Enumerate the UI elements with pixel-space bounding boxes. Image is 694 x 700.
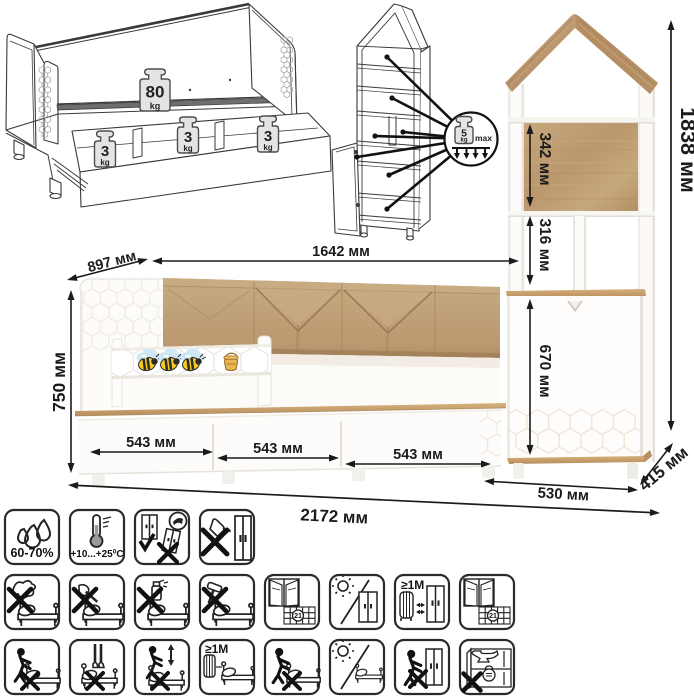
svg-text:2172 мм: 2172 мм <box>300 505 369 527</box>
svg-text:kg: kg <box>100 158 109 167</box>
svg-text:+10...+250С: +10...+250С <box>70 549 123 561</box>
svg-text:750 мм: 750 мм <box>49 352 69 412</box>
svg-text:kg: kg <box>183 144 192 153</box>
svg-text:80: 80 <box>146 83 165 102</box>
svg-text:≥1М: ≥1М <box>401 578 424 592</box>
svg-text:1642 мм: 1642 мм <box>312 244 370 260</box>
svg-text:kg: kg <box>263 143 272 152</box>
svg-text:897 мм: 897 мм <box>86 248 138 276</box>
svg-text:21: 21 <box>489 613 497 620</box>
svg-text:530 мм: 530 мм <box>537 485 589 505</box>
svg-text:543 мм: 543 мм <box>393 447 443 463</box>
svg-text:kg: kg <box>150 101 161 111</box>
svg-text:60-70%: 60-70% <box>10 546 53 560</box>
svg-text:kg: kg <box>460 138 467 144</box>
svg-text:21: 21 <box>294 613 302 620</box>
svg-text:316 мм: 316 мм <box>536 218 553 271</box>
svg-text:543 мм: 543 мм <box>126 435 176 451</box>
svg-text:342 мм: 342 мм <box>536 132 553 185</box>
svg-text:≥1М: ≥1М <box>205 642 228 656</box>
svg-text:670 мм: 670 мм <box>536 344 553 397</box>
svg-text:max: max <box>475 133 492 143</box>
svg-text:543 мм: 543 мм <box>253 441 303 457</box>
svg-text:1838 мм: 1838 мм <box>676 107 694 193</box>
